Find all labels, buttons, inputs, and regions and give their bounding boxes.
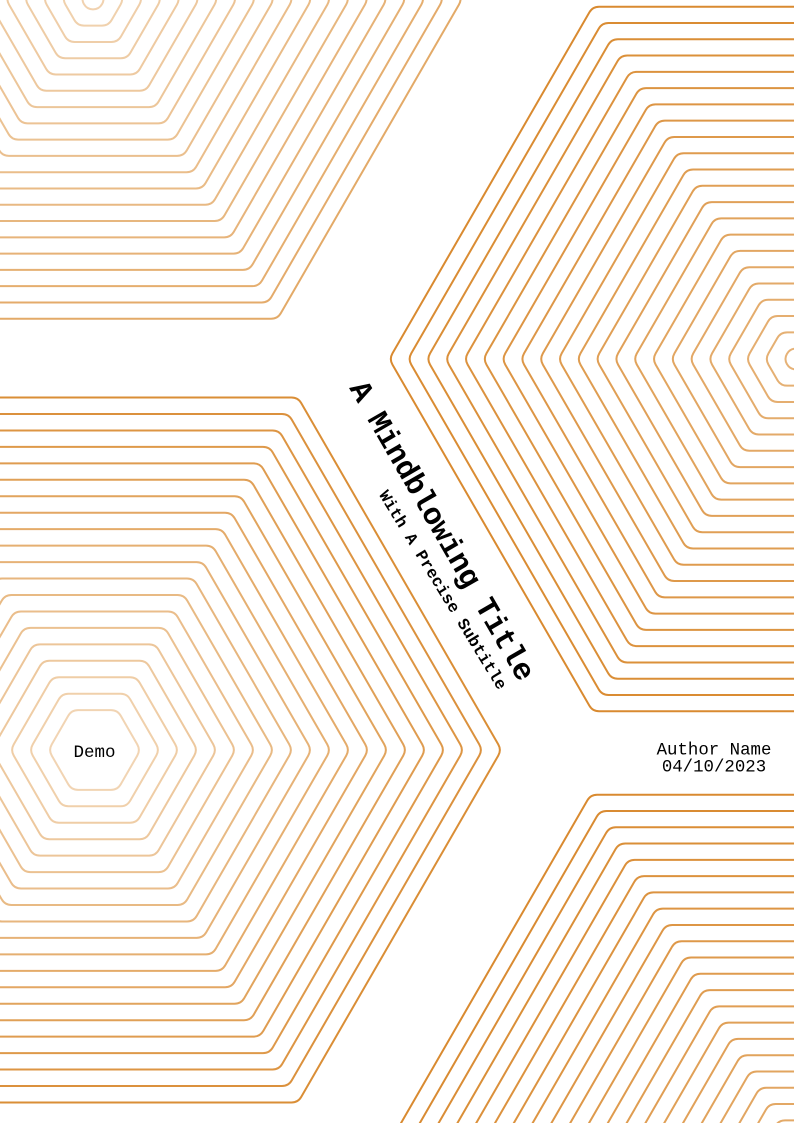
svg-text:A Mindblowing Title: A Mindblowing Title xyxy=(340,376,540,688)
svg-text:Demo: Demo xyxy=(73,743,115,763)
svg-text:04/10/2023: 04/10/2023 xyxy=(662,759,766,778)
